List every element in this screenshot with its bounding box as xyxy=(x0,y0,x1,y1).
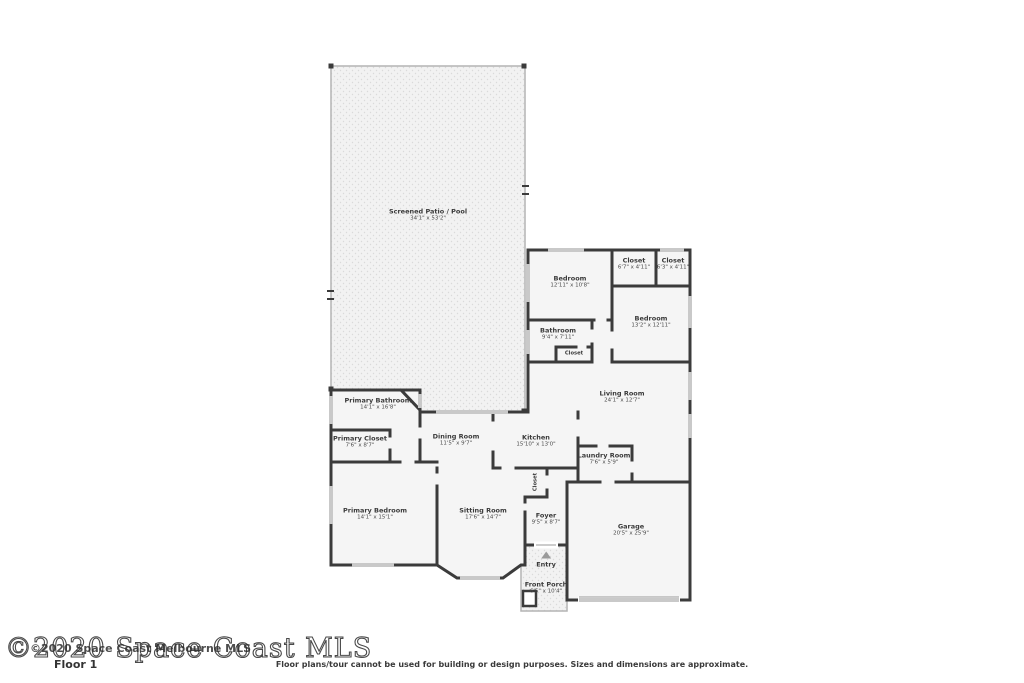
floorplan-page: Screened Patio / Pool 34'1" x 53'2" Bedr… xyxy=(0,0,1024,683)
watermark-small-text: ©2020 Space Coast Melbourne MLS xyxy=(30,642,251,655)
entry-arrow-icon xyxy=(541,552,551,559)
porch-column xyxy=(523,591,536,606)
patio-area xyxy=(331,66,525,412)
entry-label: Entry xyxy=(536,552,556,569)
floor-label: Floor 1 xyxy=(54,658,97,671)
room-name: Entry xyxy=(536,561,556,569)
floorplan-svg xyxy=(0,0,1024,683)
disclaimer-text: Floor plans/tour cannot be used for buil… xyxy=(276,660,748,669)
